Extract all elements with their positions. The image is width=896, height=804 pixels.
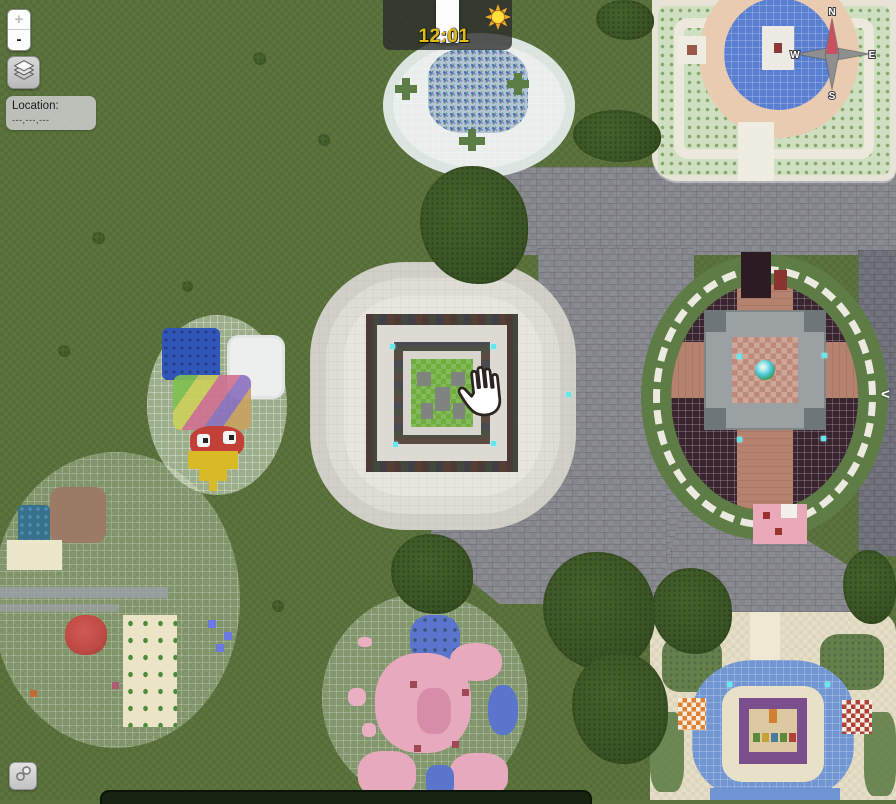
clock-widget: 12:01 <box>383 0 512 50</box>
flower-pink-small <box>362 723 376 737</box>
snow-village-circle <box>383 33 575 178</box>
bush <box>92 232 105 244</box>
shrine-dot <box>753 733 760 742</box>
shrine-dot <box>789 733 796 742</box>
map-canvas[interactable] <box>0 0 896 800</box>
bush <box>58 345 70 357</box>
flower-blue-right <box>488 685 518 735</box>
location-label: Location: <box>12 100 90 112</box>
rose-platform <box>704 310 826 430</box>
sw-blue-dot <box>216 644 224 652</box>
compass-s-label: S <box>829 91 836 100</box>
clock-time: 12:01 <box>407 26 481 48</box>
compass-n-label: N <box>828 7 835 18</box>
shrine-dot <box>762 733 769 742</box>
pink-house-door <box>781 504 797 518</box>
beacon-marker <box>727 682 732 687</box>
temple-orange-checker <box>678 698 706 730</box>
zoom-out-button[interactable]: - <box>8 30 30 49</box>
sw-blue-dot <box>208 620 216 628</box>
southwest-garden-circle <box>0 452 240 748</box>
bush <box>318 134 330 146</box>
tree-cluster <box>543 552 655 670</box>
tree-cluster <box>843 550 896 624</box>
zoom-control[interactable]: + - <box>7 9 31 51</box>
sw-orange-dot <box>30 690 37 697</box>
beacon-orb <box>755 360 775 380</box>
sw-red-bush <box>65 615 107 655</box>
rose-dark-core <box>671 284 858 510</box>
sw-blue-dot <box>224 632 232 640</box>
creeper-foot <box>421 403 433 419</box>
pink-house-dot <box>763 512 770 519</box>
west-plaza-core <box>687 45 697 55</box>
bush <box>182 281 193 292</box>
layers-button[interactable] <box>7 56 40 89</box>
bush <box>272 600 284 612</box>
side-panel-toggle[interactable]: < <box>881 386 890 404</box>
compass-e-label: E <box>869 50 876 61</box>
flower-pink-right <box>450 643 502 681</box>
beacon-marker <box>822 353 827 358</box>
center-spiral-keep <box>310 262 576 530</box>
snow-village-hedge <box>459 129 485 151</box>
platform-corner <box>704 408 726 430</box>
flower-pink-small <box>348 688 366 706</box>
platform-corner <box>704 310 726 332</box>
platform-corner <box>804 310 826 332</box>
tree-cluster <box>573 110 661 162</box>
sw-gray-path <box>0 604 118 612</box>
beacon-marker <box>737 437 742 442</box>
bush <box>253 52 266 65</box>
beacon-marker <box>737 354 742 359</box>
link-icon <box>15 765 32 787</box>
chat-bar[interactable] <box>100 790 592 804</box>
south-flower-circle <box>322 593 528 800</box>
sw-cream-patch <box>7 540 62 570</box>
temple-blue-strip <box>710 788 840 800</box>
flower-maroon-dot <box>462 689 469 696</box>
parrot-blue-patch <box>162 328 220 380</box>
tree-cluster <box>596 0 654 40</box>
location-value: ---,---,--- <box>12 115 90 125</box>
link-button[interactable] <box>9 762 37 790</box>
creeper-mouth <box>435 387 450 411</box>
rose-red-box <box>774 270 787 290</box>
sw-brown-patch <box>50 487 106 543</box>
beacon-marker <box>821 436 826 441</box>
tree-cluster <box>572 652 668 764</box>
sun-icon <box>485 4 511 35</box>
compass-rose: N S W E <box>789 4 877 100</box>
temple-shrine-frame <box>739 698 807 764</box>
garden-west-plaza <box>678 36 706 64</box>
snow-village-hedge <box>507 73 529 95</box>
sw-pink-dot <box>112 682 119 689</box>
island-core <box>774 43 782 53</box>
snow-village-hedge <box>395 78 417 100</box>
flower-maroon-dot <box>410 681 417 688</box>
flower-pink-core <box>417 688 451 734</box>
platform-corner <box>804 408 826 430</box>
temple-shrine-inner <box>749 709 797 752</box>
beacon-marker <box>393 442 398 447</box>
parrot-rainbow <box>173 375 251 430</box>
beacon-marker <box>390 344 395 349</box>
sw-birch-strip <box>123 615 177 727</box>
parrot-beak <box>188 451 238 491</box>
compass-north-needle <box>826 18 838 54</box>
flower-maroon-dot <box>452 741 459 748</box>
garden-south-walkway <box>738 122 774 181</box>
shrine-dot <box>780 733 787 742</box>
parrot-eye <box>229 435 234 440</box>
shrine-pillar <box>769 709 777 723</box>
layers-icon <box>13 59 35 86</box>
temple-red-checker <box>842 700 872 734</box>
parrot-eye <box>203 438 208 443</box>
pink-house <box>753 504 807 544</box>
shrine-dot <box>771 733 778 742</box>
flower-pink-small <box>358 637 372 647</box>
creeper-eye <box>417 372 431 386</box>
flower-maroon-dot <box>414 745 421 752</box>
location-panel: Location: ---,---,--- <box>6 96 96 130</box>
beacon-marker <box>825 682 830 687</box>
rose-trunk <box>741 252 771 298</box>
sw-gray-path <box>0 587 168 598</box>
grab-hand-cursor-icon <box>445 348 515 430</box>
beacon-marker <box>566 392 571 397</box>
pink-house-dot <box>775 528 782 535</box>
beacon-marker <box>491 441 496 446</box>
zoom-in-button[interactable]: + <box>8 10 30 30</box>
compass-w-label: W <box>790 50 800 61</box>
east-rose-circle <box>641 254 888 540</box>
